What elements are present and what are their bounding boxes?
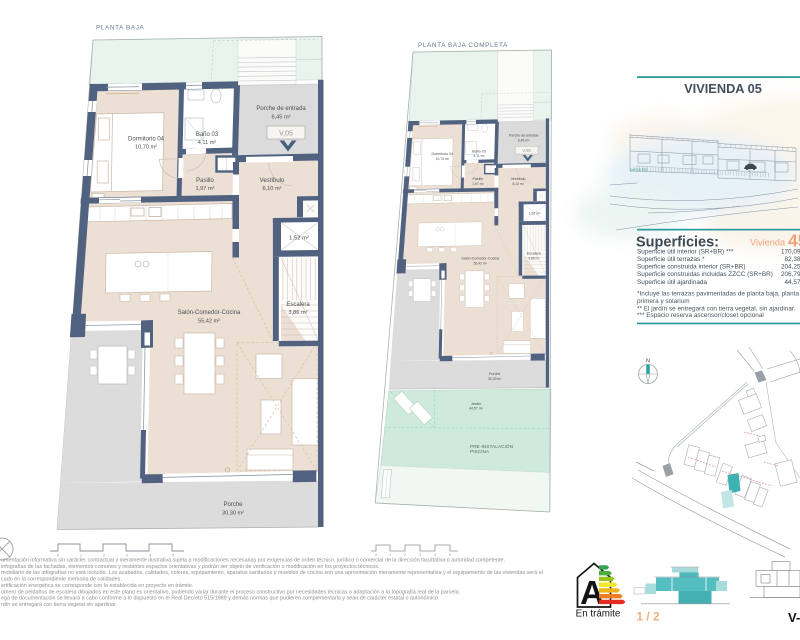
svg-text:204,25: 204,25 [781,264,800,271]
svg-text:44,57: 44,57 [785,279,800,286]
svg-text:1: 1 [389,553,391,557]
svg-text:3: 3 [419,553,421,557]
svg-text:Superficie útil interior (SR+B: Superficie útil interior (SR+BR) *** [637,248,734,255]
svg-text:umentación informativa sin car: umentación informativa sin carácter cont… [1,558,505,564]
svg-text:206,79: 206,79 [781,271,800,278]
svg-text:En trámite: En trámite [576,609,621,620]
svg-text:mobiliario de las infografías: mobiliario de las infografías no está in… [1,570,543,576]
svg-text:primera y solarium: primera y solarium [637,298,690,305]
svg-text:2: 2 [404,553,406,557]
svg-text:Superficie útil ajardinada: Superficie útil ajardinada [637,279,707,286]
svg-text:Vivienda: Vivienda [750,238,786,248]
svg-text:PISCINA: PISCINA [470,449,490,455]
svg-text:Superficie útil terrazas *: Superficie útil terrazas * [637,256,705,263]
svg-text:V-05: V-05 [788,610,800,625]
svg-text:170,09: 170,09 [781,248,800,255]
svg-text:ega de documentación se llevar: ega de documentación se llevará a cabo c… [1,596,439,602]
svg-text:N: N [646,359,650,365]
svg-text:PLANTA BAJA: PLANTA BAJA [96,25,145,32]
svg-text:úmero de peldaños de escalera: úmero de peldaños de escalera dibujados … [1,589,460,595]
svg-text:*Incluye las terrazas paviment: *Incluye las terrazas pavimentadas de pl… [637,291,799,298]
svg-text:cado en la correspondiente mem: cado en la correspondiente memoria de ca… [1,577,122,583]
svg-text:rdín se entregará con tierra v: rdín se entregará con tierra vegetal sin… [1,602,117,608]
svg-text:82,38: 82,38 [785,256,800,263]
svg-text:pilmartos: pilmartos [629,167,648,172]
svg-text:5: 5 [449,553,451,557]
svg-text:Superficie construidas incluid: Superficie construidas incluidas ZZCC (S… [637,271,773,278]
svg-text:44,57 m²: 44,57 m² [469,407,484,411]
svg-text:1 / 2: 1 / 2 [636,610,660,624]
svg-text:*** Espacio reserva ascensor/c: *** Espacio reserva ascensor/closet opci… [637,312,764,319]
svg-text:VIVIENDA 05: VIVIENDA 05 [684,81,762,96]
svg-text:ertificación energética se cor: ertificación energética se corresponde c… [1,583,193,589]
svg-text:PRE-INSTALACIÓN: PRE-INSTALACIÓN [470,443,514,450]
svg-text:4: 4 [434,553,436,557]
svg-text:0: 0 [375,553,377,557]
svg-text:Superficie construida interior: Superficie construida interior (SR+BR) [637,264,746,271]
svg-text:infografías de las fachadas, e: infografías de las fachadas, elementos c… [1,564,379,570]
svg-text:PLANTA BAJA COMPLETA: PLANTA BAJA COMPLETA [418,42,508,49]
svg-text:Jardín: Jardín [471,402,482,406]
